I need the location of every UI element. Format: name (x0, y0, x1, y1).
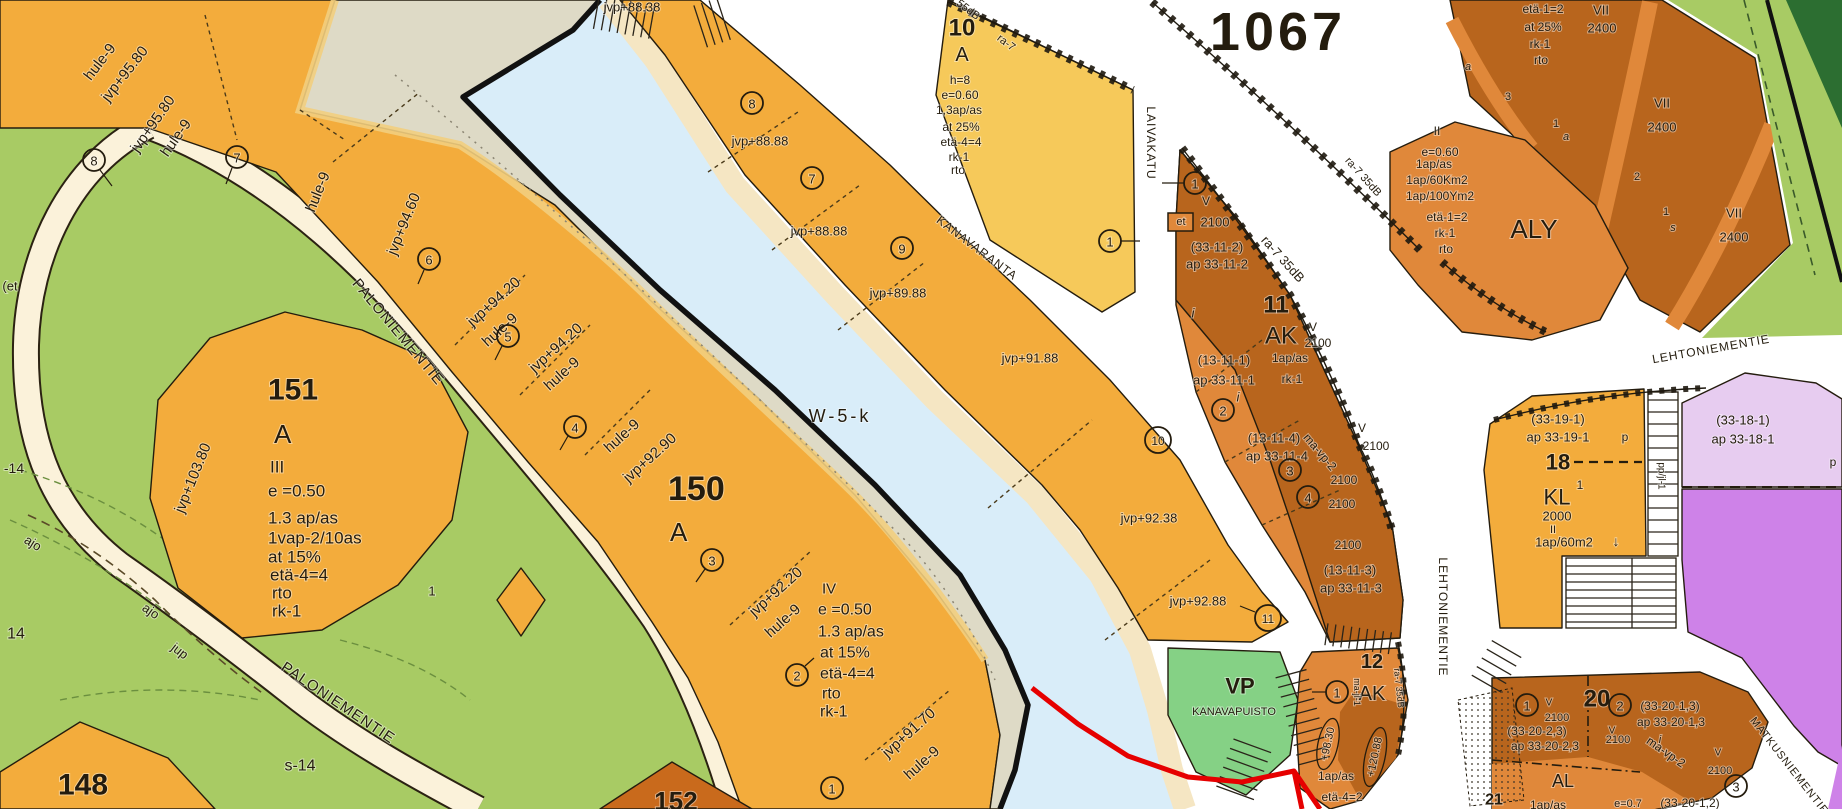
label-v: V (1309, 320, 1317, 334)
label-1ap-60m2: 1ap/60m2 (1535, 535, 1593, 550)
circled-number-label: 7 (233, 151, 240, 166)
label-jvp-88-88: jvp+88.88 (731, 134, 789, 149)
circled-number-label: 5 (504, 330, 511, 345)
label-laivakatu: LAIVAKATU (1144, 106, 1158, 179)
label-rk-1: rk-1 (1435, 226, 1456, 240)
label-a: a (1465, 61, 1471, 73)
label-rk-1: rk-1 (1282, 372, 1303, 386)
circled-number-label: 3 (708, 554, 715, 569)
label-a: A (955, 44, 969, 66)
label-2100: 2100 (1708, 765, 1732, 777)
circled-number-label: 3 (1732, 780, 1739, 795)
label-jvp-92-38: jvp+92.38 (1120, 511, 1178, 526)
label-2100: 2100 (1305, 336, 1332, 350)
label-jvp-92-88: jvp+92.88 (1169, 594, 1227, 609)
label-ap-33-11-1: ap 33-11-1 (1193, 373, 1255, 388)
label-ma-jl-1: ma-jl-1 (1352, 678, 1362, 706)
circled-number-label: 4 (571, 421, 578, 436)
label-33-11-2: (33-11-2) (1191, 240, 1244, 255)
label-14: 14 (7, 626, 25, 643)
label-et: et (1176, 216, 1185, 228)
label-rk-1: rk-1 (949, 150, 970, 164)
label-s-14: s-14 (284, 758, 315, 775)
label-18: 18 (1546, 450, 1570, 475)
circled-number-label: 2 (793, 669, 800, 684)
label-2100: 2100 (1331, 473, 1358, 487)
label-v: V (1358, 421, 1366, 435)
label-w-5-k: W-5-k (809, 406, 872, 426)
label-v: V (1546, 698, 1553, 709)
circled-number-label: 1 (1191, 177, 1198, 192)
label-ap-33-11-2: ap 33-11-2 (1186, 257, 1248, 272)
label-rk-1: rk-1 (820, 704, 848, 721)
label-rto: rto (822, 686, 841, 703)
label-aly: ALY (1510, 214, 1557, 244)
label-13-11-3: (13-11-3) (1324, 563, 1377, 578)
label-1-3ap-as: 1,3ap/as (936, 103, 982, 117)
circled-number-label: 1 (1333, 686, 1340, 701)
label-1ap-as: 1ap/as (1272, 351, 1308, 365)
label-a: A (670, 517, 688, 547)
label-ii: II (1434, 124, 1441, 138)
label-et-4-4: etä-4=4 (270, 566, 328, 585)
label-vp: VP (1225, 674, 1254, 699)
label-p: p (1830, 455, 1837, 469)
label-kanavapuisto: KANAVAPUISTO (1192, 706, 1276, 718)
label-1: 1 (1553, 118, 1559, 130)
label-14: -14 (4, 460, 24, 476)
circled-number-label: 6 (425, 253, 432, 268)
label-at-15: at 15% (268, 548, 321, 567)
label-rto: rto (272, 584, 292, 603)
label-13-11-4: (13-11-4) (1248, 431, 1301, 446)
label-2100: 2100 (1201, 215, 1230, 230)
label-1067: 1067 (1210, 2, 1346, 62)
label-e-0-7: e=0.7 (1614, 798, 1642, 809)
label-2: 2 (1634, 171, 1640, 183)
label-: ↓ (1613, 533, 1620, 549)
label-1: 1 (1663, 206, 1669, 218)
circled-number-label: 4 (1304, 491, 1311, 506)
label-p: p (1622, 430, 1629, 444)
label-1: 1 (428, 584, 435, 599)
label-ap-33-11-3: ap 33-11-3 (1320, 581, 1382, 596)
label-150: 150 (668, 470, 725, 508)
label-33-20-2-3: (33-20-2,3) (1507, 724, 1566, 738)
label-vii: VII (1726, 206, 1742, 221)
label-s: s (1670, 222, 1676, 234)
label-rk-1: rk-1 (272, 602, 301, 621)
circled-number-label: 2 (1219, 404, 1226, 419)
label-33-18-1: (33-18-1) (1716, 413, 1769, 428)
label-ap-33-19-1: ap 33-19-1 (1527, 430, 1590, 445)
label-20: 20 (1584, 686, 1611, 713)
label-2400: 2400 (1648, 120, 1677, 135)
label-33-20-1-2: (33-20-1,2) (1660, 796, 1719, 809)
label-jvp-88-88: jvp+88.88 (790, 224, 848, 239)
label-1ap-as: 1ap/as (1318, 769, 1354, 783)
label-et: (et (2, 279, 18, 294)
label-33-19-1: (33-19-1) (1531, 412, 1584, 427)
label-et-1-2: etä-1=2 (1426, 210, 1467, 224)
circled-number-label: 8 (90, 154, 97, 169)
label-al: AL (1552, 771, 1574, 791)
label-a: a (1563, 131, 1569, 143)
label-2100: 2100 (1329, 497, 1356, 511)
label-rto: rto (951, 163, 965, 177)
label-ap-33-18-1: ap 33-18-1 (1712, 432, 1775, 447)
label-1vap-2-10as: 1vap-2/10as (268, 529, 362, 548)
label-1ap-100ym2: 1ap/100Ym2 (1406, 189, 1474, 203)
label-at-25: at 25% (1524, 20, 1562, 34)
label-jvp-89-88: jvp+89.88 (869, 286, 927, 301)
label-rto: rto (1534, 53, 1548, 67)
label-h-8: h=8 (950, 73, 971, 87)
label-kl: KL (1544, 485, 1571, 510)
label-et-4-4: etä-4=4 (940, 135, 981, 149)
label-vii: VII (1593, 3, 1609, 18)
label-rto: rto (1439, 242, 1453, 256)
parking-hatch (1566, 558, 1676, 628)
circled-number-label: 3 (1286, 464, 1293, 479)
label-iii: III (270, 458, 284, 477)
label-148: 148 (58, 769, 108, 802)
zoning-map: hule-9jvp+95.80jvp+95.80hule-9hule-9jvp+… (0, 0, 1842, 809)
circled-number-label: 1 (1523, 699, 1530, 714)
label-at-15: at 15% (820, 645, 870, 662)
label-1-3-ap-as: 1.3 ap/as (268, 509, 338, 528)
circled-number-label: 1 (828, 782, 835, 797)
circled-number-label: 1 (1106, 235, 1113, 250)
label-e-0-50: e =0.50 (268, 482, 325, 501)
label-2400: 2400 (1720, 230, 1749, 245)
label-2000: 2000 (1543, 509, 1572, 524)
label-e-0-60: e=0.60 (941, 88, 978, 102)
label-ap-33-20-1-3: ap 33-20-1,3 (1637, 715, 1705, 729)
label-ap-33-20-2-3: ap 33-20-2,3 (1511, 739, 1579, 753)
label-1ap-as: 1ap/as (1530, 798, 1566, 809)
label-3: 3 (1505, 91, 1511, 103)
label-152: 152 (654, 786, 697, 809)
label-vii: VII (1654, 96, 1670, 111)
label-2400: 2400 (1588, 21, 1617, 36)
label-iv: IV (822, 581, 836, 598)
label-at-25: at 25% (942, 120, 980, 134)
label-ap-33-11-4: ap 33-11-4 (1246, 449, 1308, 464)
label-pp-jl-1: pp/jl-1 (1656, 462, 1667, 490)
label-e-0-50: e =0.50 (818, 602, 872, 619)
label-2100: 2100 (1363, 439, 1390, 453)
label-2100: 2100 (1545, 712, 1569, 724)
label-ak: AK (1265, 323, 1297, 350)
label-11: 11 (1263, 292, 1288, 319)
circled-number-label: 8 (748, 97, 755, 112)
circled-number-label: 2 (1616, 699, 1623, 714)
label-21: 21 (1485, 792, 1503, 809)
label-et-1-2: etä-1=2 (1522, 2, 1563, 16)
label-151: 151 (268, 374, 318, 407)
label-lehtoniementie: LEHTONIEMENTIE (1436, 557, 1450, 676)
label-2100: 2100 (1606, 734, 1630, 746)
circled-number-label: 10 (1151, 434, 1165, 448)
label-1ap-60km2: 1ap/60Km2 (1406, 173, 1468, 187)
label-33-20-1-3: (33-20-1,3) (1640, 699, 1699, 713)
label-v: V (1715, 748, 1722, 759)
label-rk-1: rk-1 (1530, 37, 1551, 51)
label-1-3-ap-as: 1.3 ap/as (818, 624, 884, 641)
label-13-11-1: (13-11-1) (1198, 353, 1251, 368)
label-1ap-as: 1ap/as (1416, 157, 1452, 171)
label-2100: 2100 (1335, 538, 1362, 552)
label-jvp-88-38: jvp+88.38 (603, 0, 661, 15)
label-jvp-91-88: jvp+91.88 (1001, 351, 1059, 366)
label-et-4-4: etä-4=4 (820, 666, 875, 683)
label-v: V (1202, 194, 1210, 208)
label-1: 1 (1577, 478, 1584, 492)
label-12: 12 (1361, 651, 1383, 673)
label-a: A (274, 419, 292, 449)
label-et-4-2: etä-4=2 (1321, 790, 1362, 804)
circled-number-label: 7 (808, 172, 815, 187)
circled-number-label: 11 (1262, 612, 1275, 626)
circled-number-label: 9 (898, 242, 905, 257)
